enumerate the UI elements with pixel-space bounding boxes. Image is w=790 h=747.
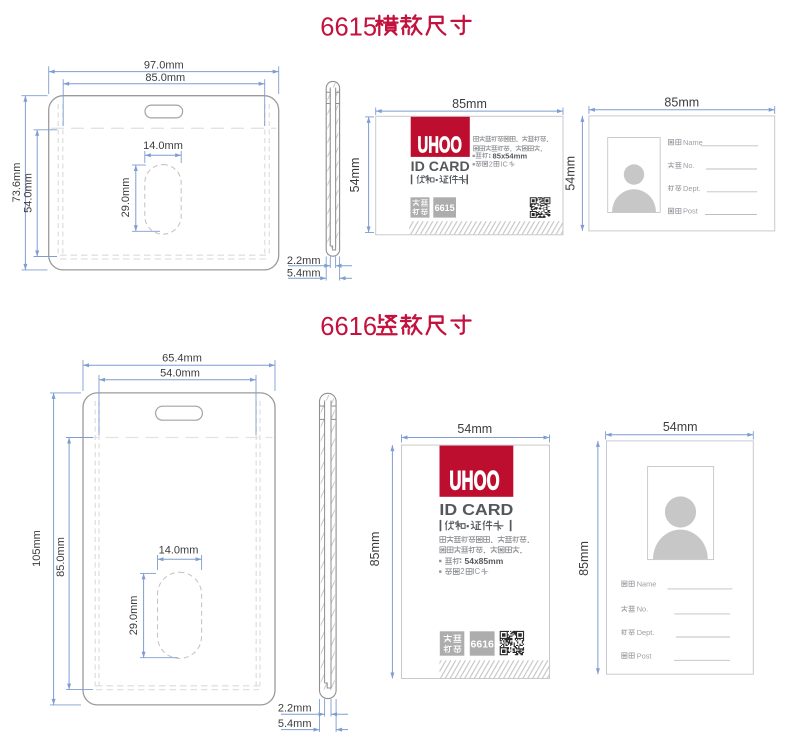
svg-text:14.0mm: 14.0mm — [159, 545, 199, 557]
svg-text:UHOO: UHOO — [449, 465, 499, 495]
svg-text:54mm: 54mm — [563, 156, 577, 191]
svg-text:Post: Post — [683, 207, 698, 216]
svg-text:85mm: 85mm — [577, 541, 591, 576]
svg-text:Name: Name — [637, 580, 657, 589]
svg-text:IC: IC — [501, 160, 508, 169]
svg-text:85mm: 85mm — [452, 97, 487, 111]
svg-text:65.4mm: 65.4mm — [162, 353, 202, 365]
svg-text:2: 2 — [489, 160, 493, 169]
svg-text:85.0mm: 85.0mm — [145, 72, 185, 84]
svg-text:85.0mm: 85.0mm — [55, 537, 67, 577]
svg-text:No.: No. — [683, 161, 695, 170]
svg-text:5.4mm: 5.4mm — [278, 718, 312, 730]
svg-text:5.4mm: 5.4mm — [287, 267, 321, 279]
svg-text:Name: Name — [683, 138, 703, 147]
svg-text:54x85mm: 54x85mm — [465, 556, 504, 566]
svg-text:54mm: 54mm — [457, 422, 492, 436]
svg-text:2.2mm: 2.2mm — [287, 255, 321, 267]
svg-text:29.0mm: 29.0mm — [128, 596, 140, 636]
svg-text:UHOO: UHOO — [418, 131, 462, 157]
svg-text:105mm: 105mm — [31, 530, 43, 567]
svg-text:No.: No. — [637, 605, 649, 614]
svg-text:6616: 6616 — [471, 638, 495, 650]
svg-text:Dept.: Dept. — [683, 184, 701, 193]
svg-text:29.0mm: 29.0mm — [120, 178, 132, 218]
svg-text:54mm: 54mm — [348, 158, 362, 193]
svg-text:85x54mm: 85x54mm — [493, 151, 528, 160]
svg-text:97.0mm: 97.0mm — [144, 59, 184, 71]
svg-text:54.0mm: 54.0mm — [160, 367, 200, 379]
svg-text:14.0mm: 14.0mm — [143, 140, 183, 152]
svg-text:ID CARD: ID CARD — [411, 158, 470, 174]
svg-text:2.2mm: 2.2mm — [278, 703, 312, 715]
svg-text:6615: 6615 — [435, 203, 455, 213]
svg-text:6615: 6615 — [320, 14, 377, 42]
svg-text:73.6mm: 73.6mm — [11, 163, 23, 203]
svg-text:Post: Post — [637, 651, 652, 660]
svg-text:54.0mm: 54.0mm — [22, 173, 34, 213]
svg-text:IC: IC — [472, 567, 480, 576]
svg-text:Dept.: Dept. — [637, 628, 655, 637]
svg-text:85mm: 85mm — [664, 96, 699, 110]
svg-text:ID CARD: ID CARD — [439, 502, 513, 519]
svg-text:85mm: 85mm — [368, 532, 382, 567]
svg-text:54mm: 54mm — [663, 420, 698, 434]
svg-text:2: 2 — [460, 567, 464, 576]
svg-text:6616: 6616 — [320, 313, 377, 341]
